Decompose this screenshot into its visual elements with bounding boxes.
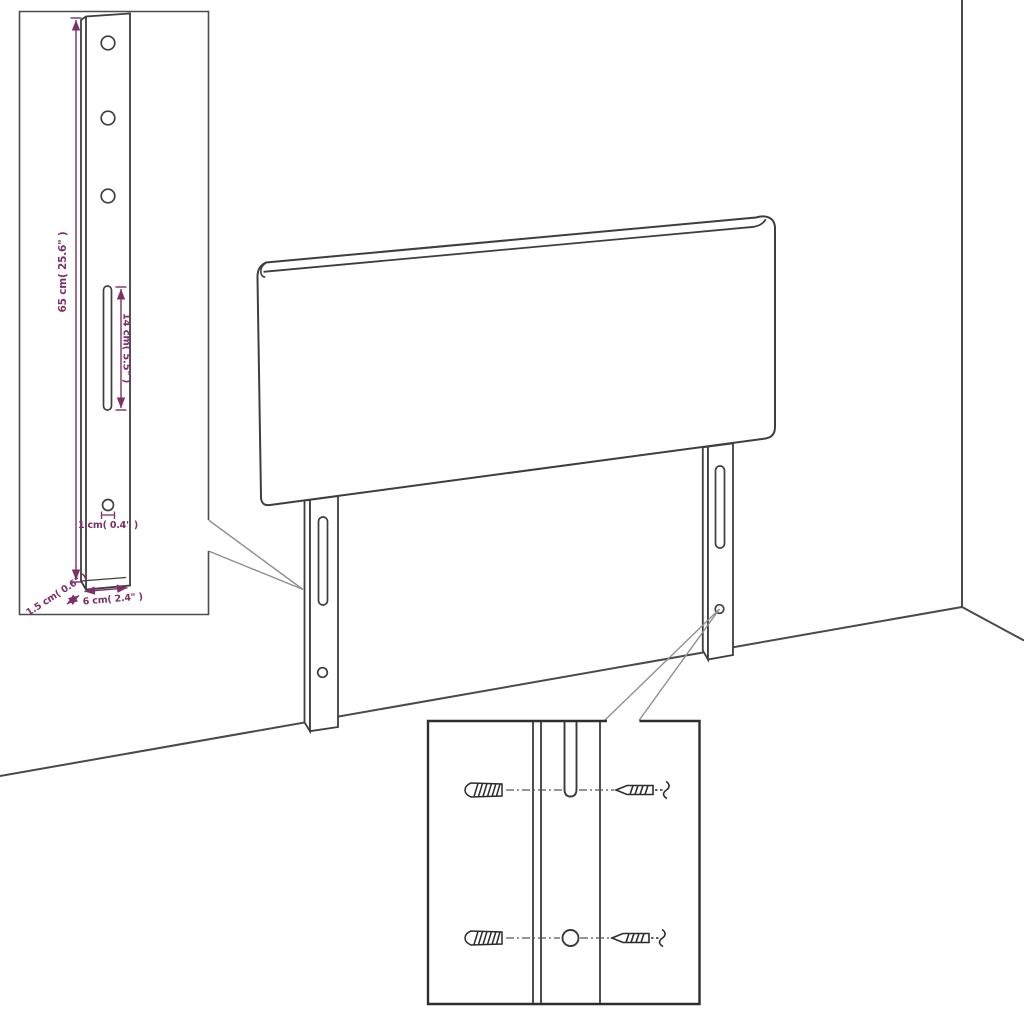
headboard-panel [257, 216, 775, 505]
leader-mounting-inset-right [639, 609, 720, 721]
leader-bracket-inset-upper [209, 520, 304, 590]
callout-leader-lines [209, 520, 720, 721]
mounting-detail-inset [428, 721, 700, 1004]
bracket-bar-outline [81, 14, 130, 590]
headboard-outline [257, 216, 775, 505]
left-leg-hole [318, 668, 328, 678]
right-mounting-leg [703, 443, 733, 659]
dim-label-slot-length: 14 cm( 5.5" ) [121, 313, 132, 383]
left-leg-slot [319, 517, 328, 605]
right-leg-slot [716, 466, 725, 548]
dim-label-hole-diameter: 1 cm( 0.4" ) [78, 520, 138, 531]
leader-bracket-inset-lower [209, 551, 304, 590]
dim-label-bracket-height: 65 cm( 25.6" ) [57, 232, 69, 313]
bracket-bar [81, 14, 130, 590]
diagram-svg: 65 cm( 25.6" ) 14 cm( 5.5" ) 1 cm( 0.4" … [0, 0, 1024, 1024]
left-mounting-leg [305, 496, 339, 731]
leader-mounting-inset-left [605, 609, 720, 721]
assembly-diagram-canvas: 65 cm( 25.6" ) 14 cm( 5.5" ) 1 cm( 0.4" … [0, 0, 1024, 1024]
wall-floor-line-right [962, 607, 1024, 641]
bracket-detail-inset: 65 cm( 25.6" ) 14 cm( 5.5" ) 1 cm( 0.4" … [20, 12, 209, 619]
